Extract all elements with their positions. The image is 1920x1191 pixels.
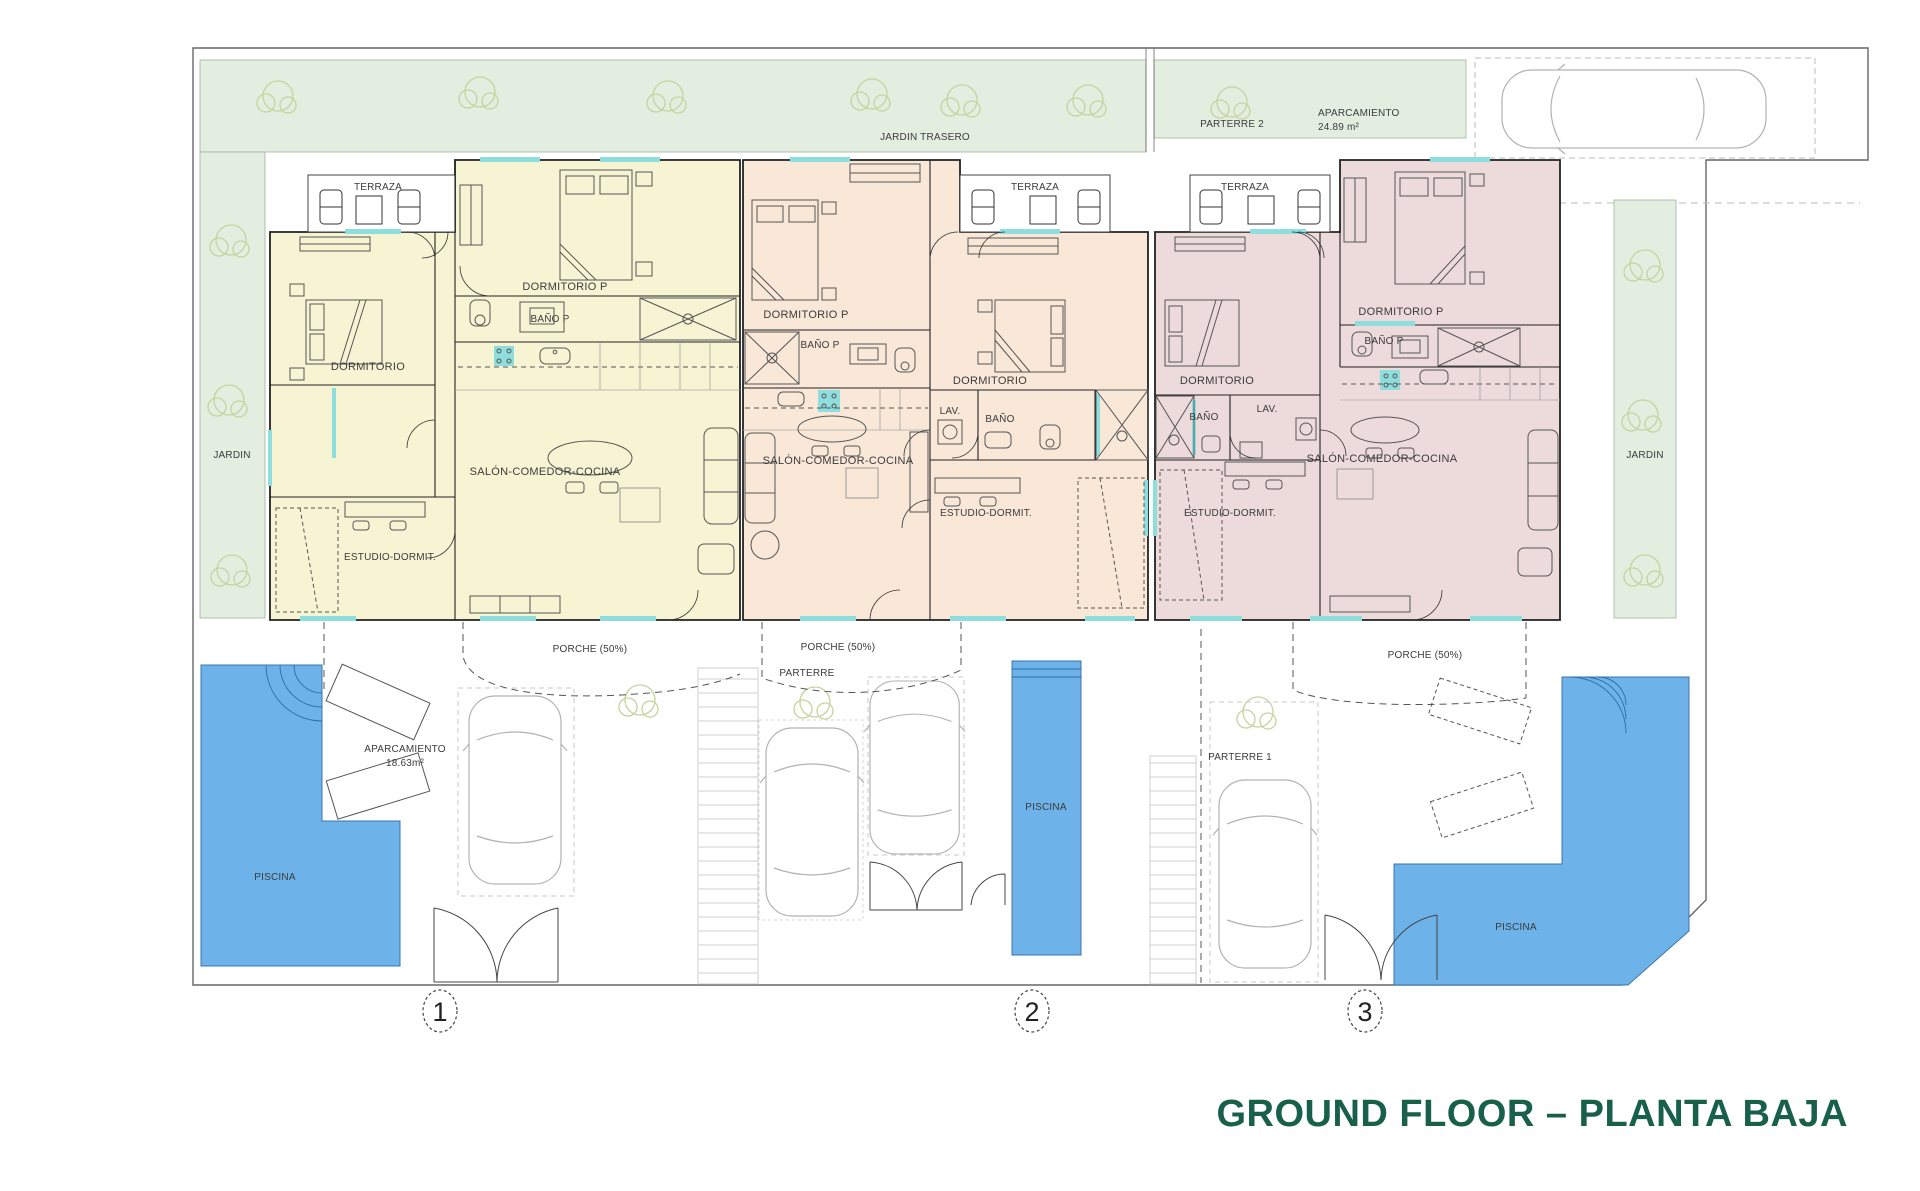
estudio-label: ESTUDIO-DORMIT.	[1184, 508, 1276, 519]
porche-2-label: PORCHE (50%)	[801, 642, 876, 653]
estudio-label: ESTUDIO-DORMIT.	[344, 552, 436, 563]
driveways-cars	[326, 664, 1534, 984]
car-icon	[864, 681, 965, 854]
parterre-2-label: PARTERRE 2	[1200, 119, 1264, 130]
piscina-middle-label: PISCINA	[1025, 802, 1067, 813]
piscina-right-label: PISCINA	[1495, 922, 1537, 933]
car-icon	[1502, 64, 1766, 154]
bano-p-label: BAÑO P	[1365, 334, 1404, 347]
car-icon	[463, 696, 567, 884]
terraza-label: TERRAZA	[1221, 182, 1269, 193]
car-icon	[1213, 780, 1317, 968]
car-icon	[760, 728, 864, 916]
estudio-label: ESTUDIO-DORMIT.	[940, 508, 1032, 519]
floor-plan-drawing: JARDIN TRASERO PARTERRE 2 APARCAMIENTO 2…	[0, 0, 1920, 1191]
aparcamiento-1-label: APARCAMIENTO	[364, 744, 446, 755]
pool-left	[201, 665, 400, 966]
unit-1-plan	[268, 157, 740, 621]
unit-3-plan	[1153, 157, 1560, 621]
unit-1-number: 1	[432, 997, 447, 1027]
parterre-1-label: PARTERRE 1	[1208, 752, 1272, 763]
porch-dashed-lines	[324, 622, 1526, 983]
salon-label: SALÓN-COMEDOR-COCINA	[1307, 452, 1458, 465]
piscina-left-label: PISCINA	[254, 872, 296, 883]
porche-3-label: PORCHE (50%)	[1388, 650, 1463, 661]
aparcamiento-1-size: 18.63m²	[386, 758, 425, 769]
dormitorio-label: DORMITORIO	[331, 361, 405, 373]
pergola-slats	[1150, 756, 1196, 984]
unit-3-number: 3	[1357, 997, 1372, 1027]
dormitorio-p-label: DORMITORIO P	[522, 281, 607, 293]
bano-p-label: BAÑO P	[801, 338, 840, 351]
porche-1-label: PORCHE (50%)	[553, 644, 628, 655]
dormitorio-p-label: DORMITORIO P	[1358, 306, 1443, 318]
dormitorio-p-label: DORMITORIO P	[763, 309, 848, 321]
pool-right	[1394, 677, 1689, 985]
page-title: GROUND FLOOR – PLANTA BAJA	[1216, 1093, 1848, 1135]
lav-label: LAV.	[1257, 404, 1278, 415]
lav-label: LAV.	[940, 406, 961, 417]
dormitorio-label: DORMITORIO	[953, 375, 1027, 387]
floor-plan-page: JARDIN TRASERO PARTERRE 2 APARCAMIENTO 2…	[0, 0, 1920, 1191]
top-parking-area	[1475, 58, 1815, 158]
aparcamiento-top-label: APARCAMIENTO	[1318, 108, 1400, 119]
unit-markers: 1 2 3	[423, 990, 1382, 1032]
salon-label: SALÓN-COMEDOR-COCINA	[763, 454, 914, 467]
tilted-spaces	[326, 664, 1534, 838]
pergola-slats	[698, 668, 758, 984]
jardin-right-label: JARDIN	[1626, 450, 1663, 461]
salon-label: SALÓN-COMEDOR-COCINA	[470, 465, 621, 478]
bano-label: BAÑO	[1189, 410, 1218, 423]
gate-arcs	[434, 862, 1437, 982]
aparcamiento-top-size: 24.89 m²	[1318, 122, 1360, 133]
jardin-trasero-label: JARDIN TRASERO	[880, 132, 970, 143]
bano-label: BAÑO	[985, 412, 1014, 425]
bano-p-label: BAÑO P	[531, 312, 570, 325]
dormitorio-label: DORMITORIO	[1180, 375, 1254, 387]
pools	[201, 661, 1689, 985]
terraza-label: TERRAZA	[1011, 182, 1059, 193]
unit-2-plan	[743, 157, 1148, 621]
unit-2-number: 2	[1024, 997, 1039, 1027]
jardin-trasero-area	[200, 60, 1146, 152]
jardin-left-label: JARDIN	[213, 450, 250, 461]
parterre-label: PARTERRE	[779, 668, 834, 679]
terraza-label: TERRAZA	[354, 182, 402, 193]
